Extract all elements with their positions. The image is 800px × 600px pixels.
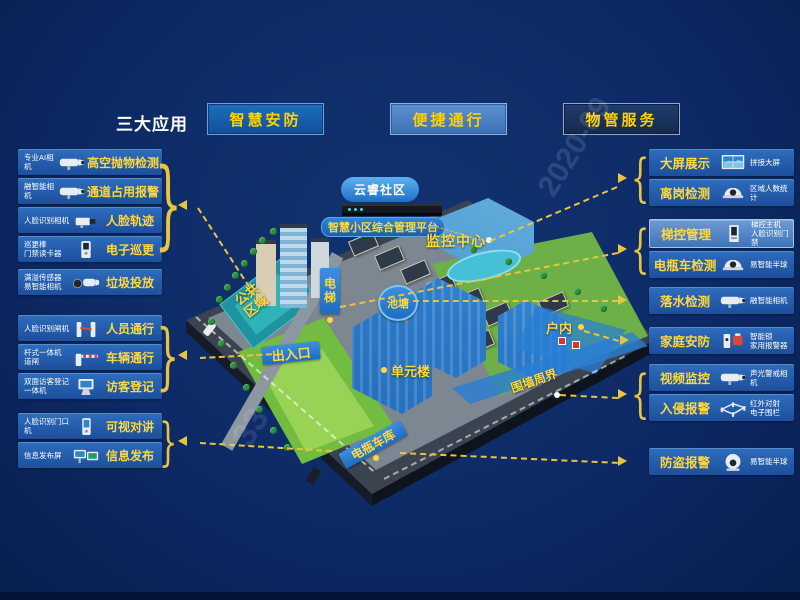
item-label: 入侵报警 — [652, 398, 718, 417]
device-label: 易智能半球 — [748, 260, 791, 269]
tree — [208, 318, 215, 325]
lock-alarm-icon — [718, 330, 748, 351]
item-label: 高空抛物检测 — [87, 154, 159, 171]
tree — [600, 305, 607, 312]
left-item-visitor-registration[interactable]: 双面访客登记一体机 访客登记 — [18, 373, 162, 399]
connector-arrow — [620, 335, 629, 345]
left-item-garbage-disposal[interactable]: 满溢传感器易智能相机 垃圾投放 — [18, 269, 162, 295]
left-item-passage-occupied-alarm[interactable]: 融智能相机 通道占用报警 — [18, 178, 162, 204]
platform-label-text: 智慧小区综合管理平台 — [328, 219, 438, 235]
tree — [259, 237, 266, 244]
item-label: 电子巡更 — [101, 241, 159, 258]
device-label: 杆式一体机道闸 — [21, 348, 71, 366]
indoor-alarm-dot — [558, 337, 566, 345]
left-item-video-intercom[interactable]: 人脸识别门口机 可视对讲 — [18, 413, 162, 439]
tree — [270, 228, 277, 235]
item-label: 访客登记 — [101, 378, 159, 395]
left-item-person-access[interactable]: 人脸识别闸机 人员通行 — [18, 315, 162, 341]
device-label: 融智能相机 — [21, 182, 57, 200]
item-label: 可视对讲 — [101, 418, 159, 435]
right-item-ebike-detection[interactable]: 电瓶车检测 易智能半球 — [649, 251, 794, 278]
tree — [224, 284, 231, 291]
right-group-elevator: 梯控管理 梯控主机人脸识别门禁 电瓶车检测 易智能半球 — [649, 219, 794, 278]
bullet-camera-icon — [57, 152, 87, 173]
right-group-garage: 防盗报警 易智能半球 — [649, 448, 794, 475]
connector-arrow — [618, 295, 627, 305]
barrier-gate-icon — [71, 347, 101, 368]
left-item-info-release[interactable]: 信息发布屏 信息发布 — [18, 442, 162, 468]
item-label: 车辆通行 — [101, 349, 159, 366]
right-item-elevator-control[interactable]: 梯控管理 梯控主机人脸识别门禁 — [649, 219, 794, 248]
tree — [250, 248, 257, 255]
device-label: 专业AI相机 — [21, 153, 57, 171]
device-label: 融智能相机 — [748, 296, 791, 305]
right-brace: { — [630, 219, 650, 279]
device-label: 信息发布屏 — [21, 451, 71, 460]
tree — [243, 384, 250, 391]
left-item-falling-object-detection[interactable]: 专业AI相机 高空抛物检测 — [18, 149, 162, 175]
building-glass — [280, 224, 307, 308]
device-label: 易智能半球 — [748, 457, 791, 466]
right-group-monitor-center: 大屏展示 拼接大屏 离岗检测 区域人数统计 — [649, 149, 794, 206]
connector-arrow — [178, 350, 187, 360]
tree — [505, 258, 512, 265]
right-item-drowning-detection[interactable]: 落水检测 融智能相机 — [649, 287, 794, 314]
device-label: 智能锁家用报警器 — [748, 332, 791, 350]
right-item-big-screen-display[interactable]: 大屏展示 拼接大屏 — [649, 149, 794, 176]
tree — [270, 427, 277, 434]
page-title: 三大应用 — [116, 110, 196, 135]
smart-community-diagram: 云睿社区 智慧小区综合管理平台 监控中心 电梯 池塘 公共区域 出入口 单元楼 … — [0, 0, 800, 600]
item-label: 大屏展示 — [652, 153, 718, 172]
right-brace: { — [630, 364, 650, 423]
elevator-dot — [327, 317, 333, 323]
tree — [241, 260, 248, 267]
right-item-away-detection[interactable]: 离岗检测 区域人数统计 — [649, 179, 794, 206]
elevator-label: 电梯 — [322, 277, 339, 305]
tab-convenient-access[interactable]: 便捷通行 — [390, 103, 507, 135]
right-group-perimeter: 视频监控 声光警戒相机 入侵报警 红外对射电子围栏 — [649, 364, 794, 421]
device-label: 满溢传感器易智能相机 — [21, 273, 71, 291]
box-camera-icon — [71, 210, 101, 231]
pond-plaque: 池塘 — [378, 285, 418, 321]
indoor-alarm-dot — [572, 341, 580, 349]
turret-camera-icon — [718, 451, 748, 472]
tab-smart-security[interactable]: 智慧安防 — [207, 103, 324, 135]
right-item-home-security[interactable]: 家庭安防 智能锁家用报警器 — [649, 327, 794, 354]
tree — [230, 362, 237, 369]
bottom-strip — [0, 592, 800, 600]
connector-arrow — [618, 173, 627, 183]
tree — [218, 340, 225, 347]
card-reader-icon — [71, 239, 101, 260]
video-wall-icon — [718, 152, 748, 173]
item-label: 梯控管理 — [653, 224, 719, 243]
item-label: 离岗检测 — [652, 183, 718, 202]
elevator-plaque: 电梯 — [320, 268, 340, 314]
tree — [540, 272, 547, 279]
indoor-dot — [578, 324, 584, 330]
device-label: 红外对射电子围栏 — [748, 399, 791, 417]
connector-arrow — [618, 456, 627, 466]
monitor-center-label: 监控中心 — [426, 231, 486, 251]
left-item-vehicle-access[interactable]: 杆式一体机道闸 车辆通行 — [18, 344, 162, 370]
dashed-connector — [197, 207, 255, 295]
tree — [256, 406, 263, 413]
right-item-intrusion-alarm[interactable]: 入侵报警 红外对射电子围栏 — [649, 394, 794, 421]
dome-camera-icon — [718, 254, 748, 275]
tree — [216, 296, 223, 303]
visitor-kiosk-icon — [71, 376, 101, 397]
tree — [232, 272, 239, 279]
dashed-connector — [413, 300, 618, 302]
dome-camera-icon — [718, 182, 748, 203]
indoor-label: 户内 — [546, 318, 572, 337]
left-item-face-track[interactable]: 人脸识别相机 人脸轨迹 — [18, 207, 162, 233]
item-label: 电瓶车检测 — [652, 255, 718, 274]
item-label: 人脸轨迹 — [101, 212, 159, 229]
cloud-community-label: 云睿社区 — [341, 177, 419, 202]
device-label: 双面访客登记一体机 — [21, 377, 71, 395]
right-group-indoor: 家庭安防 智能锁家用报警器 — [649, 327, 794, 354]
tab-property-service[interactable]: 物管服务 — [563, 103, 680, 135]
unit-building-dot — [381, 367, 387, 373]
item-label: 防盗报警 — [652, 452, 718, 471]
elevator-terminal-icon — [719, 223, 749, 244]
left-item-electronic-patrol[interactable]: 巡更棒门禁读卡器 电子巡更 — [18, 236, 162, 262]
right-item-video-surveillance[interactable]: 视频监控 声光警戒相机 — [649, 364, 794, 391]
item-label: 垃圾投放 — [101, 274, 159, 291]
info-screen-icon — [71, 445, 101, 466]
item-label: 人员通行 — [101, 320, 159, 337]
item-label: 视频监控 — [652, 368, 718, 387]
device-label: 人脸识别相机 — [21, 216, 71, 225]
device-label: 人脸识别闸机 — [21, 324, 71, 333]
sensor-camera-icon — [71, 272, 101, 293]
right-brace: { — [630, 149, 650, 207]
connector-arrow — [618, 389, 627, 399]
item-label: 落水检测 — [652, 291, 718, 310]
device-label: 区域人数统计 — [748, 184, 791, 202]
left-group-entrance: 人脸识别闸机 人员通行 杆式一体机道闸 车辆通行 双面访客登记一体机 访客登记 — [18, 315, 162, 399]
bullet-camera-icon — [718, 290, 748, 311]
unit-building-label: 单元楼 — [391, 361, 430, 380]
right-group-pond: 落水检测 融智能相机 — [649, 287, 794, 314]
entrance-label: 出入口 — [271, 342, 312, 365]
car — [305, 467, 321, 485]
item-label: 通道占用报警 — [87, 183, 159, 200]
device-label: 拼接大屏 — [748, 158, 791, 167]
bullet-camera-icon — [57, 181, 87, 202]
left-group-public-area: 专业AI相机 高空抛物检测 融智能相机 通道占用报警 人脸识别相机 人脸轨迹 巡… — [18, 149, 162, 295]
connector-arrow — [178, 200, 187, 210]
server-rack — [342, 203, 442, 216]
door-station-icon — [71, 416, 101, 437]
fence-icon — [718, 397, 748, 418]
device-label: 声光警戒相机 — [748, 369, 791, 387]
device-label: 人脸识别门口机 — [21, 417, 71, 435]
right-item-burglar-alarm[interactable]: 防盗报警 易智能半球 — [649, 448, 794, 475]
turnstile-icon — [71, 318, 101, 339]
connector-arrow — [178, 436, 187, 446]
bullet-camera-icon — [718, 367, 748, 388]
cloud-label-text: 云睿社区 — [354, 181, 406, 198]
connector-arrow — [618, 244, 627, 254]
bike-garage-dot — [373, 455, 379, 461]
device-label: 巡更棒门禁读卡器 — [21, 240, 71, 258]
item-label: 信息发布 — [101, 447, 159, 464]
device-label: 梯控主机人脸识别门禁 — [749, 220, 790, 247]
left-group-unit-building: 人脸识别门口机 可视对讲 信息发布屏 信息发布 — [18, 413, 162, 468]
tree — [574, 288, 581, 295]
item-label: 家庭安防 — [652, 331, 718, 350]
